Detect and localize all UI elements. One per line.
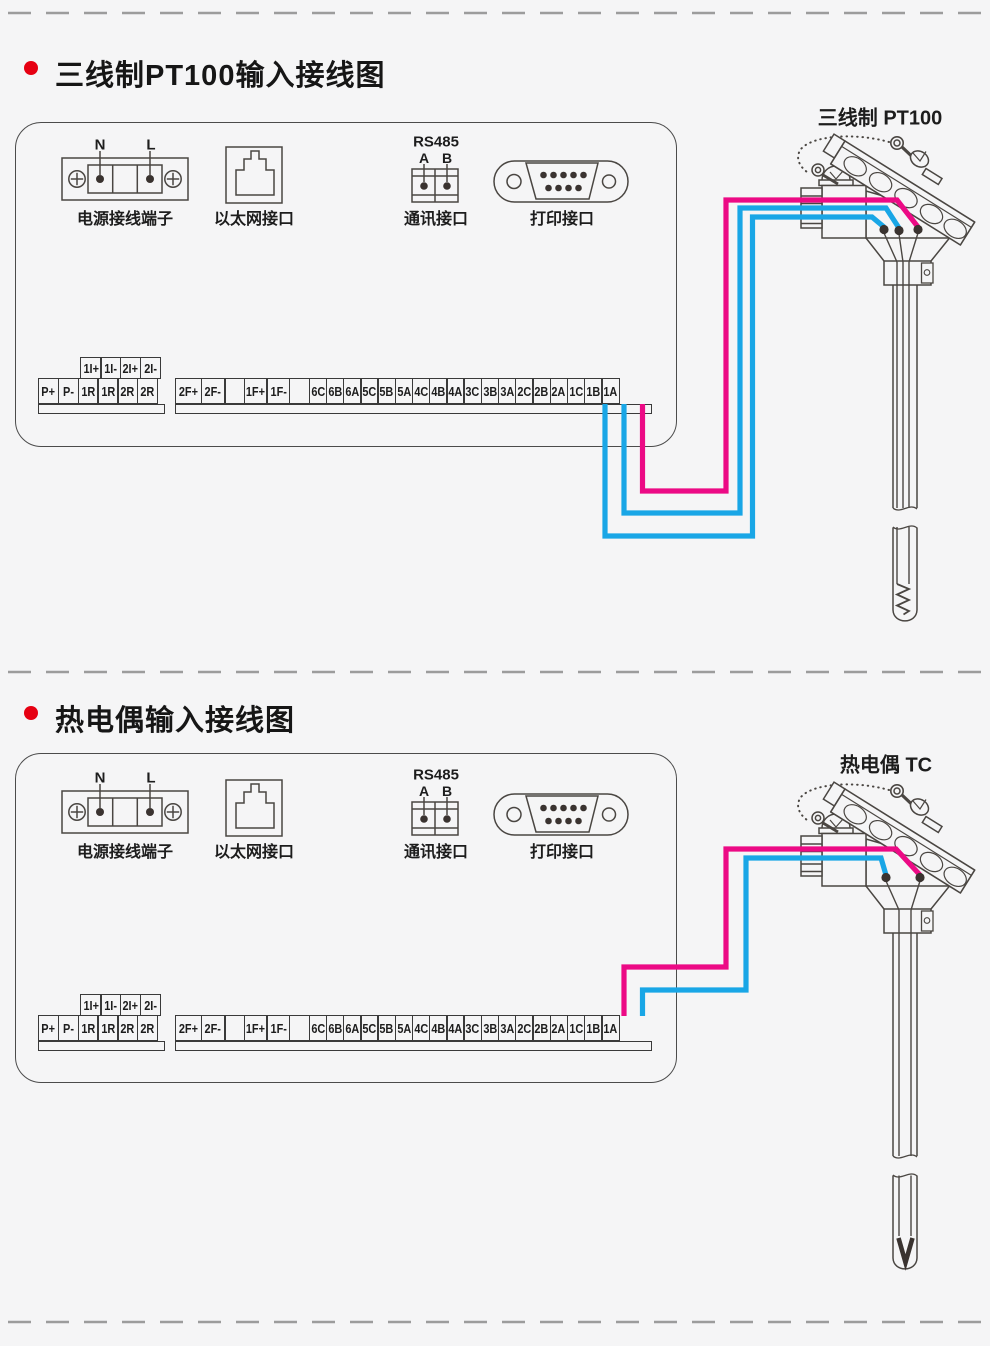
rs485-title: RS485 — [413, 767, 459, 784]
terminal-cell: 1I+ — [80, 357, 101, 379]
terminal-cell: P- — [58, 1015, 79, 1041]
terminal-cell: 1I- — [100, 994, 121, 1016]
tc-sensor-label: 热电偶 TC — [840, 749, 932, 778]
section2-title: 热电偶输入接线图 — [55, 697, 295, 739]
terminal-cell: 2A — [550, 1015, 569, 1041]
terminal-cell — [289, 378, 310, 404]
terminal-cell: 2C — [515, 378, 534, 404]
rs485-a-label: A — [419, 783, 429, 799]
power-l-label: L — [146, 137, 155, 154]
terminal-cell: 6B — [326, 1015, 345, 1041]
terminal-cell: 2B — [532, 1015, 551, 1041]
terminal-cell: 2I+ — [120, 994, 141, 1016]
terminal-cell: 5A — [395, 1015, 414, 1041]
terminal-cell: 1R — [97, 1015, 118, 1041]
terminal-cell: 5C — [360, 378, 379, 404]
terminal-cell: 3C — [463, 1015, 482, 1041]
terminal-cell: 2R — [117, 378, 138, 404]
comm-port-label: 通讯接口 — [404, 205, 468, 229]
terminal-cell: 4B — [429, 1015, 448, 1041]
page: { "colors": { "wire_magenta": "#ec0a85",… — [0, 0, 990, 1346]
terminal-strip-main-base — [175, 404, 652, 414]
terminal-cell — [224, 378, 245, 404]
terminal-cell: 4C — [412, 1015, 431, 1041]
power-l-label: L — [146, 770, 155, 787]
terminal-cell: 1F- — [266, 378, 290, 404]
terminal-cell: 3B — [481, 378, 500, 404]
terminal-cell: 1B — [584, 1015, 603, 1041]
terminal-cell: 2I- — [140, 994, 161, 1016]
terminal-cell: 6C — [309, 378, 328, 404]
terminal-strip-left: P+P-1R1R2R2R — [38, 1015, 158, 1041]
terminal-cell: 4C — [412, 378, 431, 404]
power-n-label: N — [95, 770, 106, 787]
terminal-cell: 2I+ — [120, 357, 141, 379]
terminal-cell: 2B — [532, 378, 551, 404]
terminal-cell: 1R — [97, 378, 118, 404]
terminal-cell: 1A — [601, 1015, 620, 1041]
terminal-cell: 4A — [446, 378, 465, 404]
terminal-cell: 2R — [137, 378, 158, 404]
terminal-cell: 1I+ — [80, 994, 101, 1016]
comm-port-label: 通讯接口 — [404, 838, 468, 862]
section1-title: 三线制PT100输入接线图 — [55, 52, 385, 94]
terminal-cell: 1F+ — [244, 1015, 268, 1041]
power-terminal-label: 电源接线端子 — [77, 205, 173, 229]
terminal-strip-left-base — [38, 1041, 165, 1051]
terminal-cell: 3A — [498, 1015, 517, 1041]
terminal-cell: 6B — [326, 378, 345, 404]
pt100-sensor-label: 三线制 PT100 — [818, 102, 942, 131]
wire-1a-cyan — [643, 858, 887, 1016]
terminal-cell: 2F+ — [175, 378, 202, 404]
terminal-cell: 1A — [601, 378, 620, 404]
terminal-cell: 1C — [567, 378, 586, 404]
terminal-cell: 5A — [395, 378, 414, 404]
terminal-cell: 2F+ — [175, 1015, 202, 1041]
terminal-cell: 1F+ — [244, 378, 268, 404]
terminal-cell: 3C — [463, 378, 482, 404]
section2-bullet — [24, 706, 38, 720]
printer-port-label: 打印接口 — [530, 838, 594, 862]
terminal-cell: 1F- — [266, 1015, 290, 1041]
tc-sensor — [798, 782, 975, 1269]
terminal-cell: 6A — [343, 378, 362, 404]
terminal-cell — [224, 1015, 245, 1041]
terminal-cell: 5B — [377, 1015, 396, 1041]
terminal-strip-left: P+P-1R1R2R2R — [38, 378, 158, 404]
terminal-cell: 3B — [481, 1015, 500, 1041]
terminal-cell: 2I- — [140, 357, 161, 379]
power-terminal-label: 电源接线端子 — [77, 838, 173, 862]
power-n-label: N — [95, 137, 106, 154]
terminal-cell: 3A — [498, 378, 517, 404]
terminal-cell: 2A — [550, 378, 569, 404]
terminal-strip-left-base — [38, 404, 165, 414]
terminal-strip-aux: 1I+1I-2I+2I- — [80, 994, 161, 1016]
terminal-cell: 2F- — [201, 1015, 226, 1041]
terminal-cell: 2R — [137, 1015, 158, 1041]
terminal-strip-main: 2F+2F-1F+1F-6C6B6A5C5B5A4C4B4A3C3B3A2C2B… — [175, 1015, 620, 1041]
terminal-cell: 1C — [567, 1015, 586, 1041]
rs485-a-label: A — [419, 150, 429, 166]
terminal-strip-main: 2F+2F-1F+1F-6C6B6A5C5B5A4C4B4A3C3B3A2C2B… — [175, 378, 620, 404]
ethernet-port-label: 以太网接口 — [214, 838, 294, 862]
terminal-cell: P+ — [38, 378, 59, 404]
terminal-cell: 6A — [343, 1015, 362, 1041]
terminal-strip-aux: 1I+1I-2I+2I- — [80, 357, 161, 379]
terminal-cell: 1R — [78, 378, 99, 404]
ethernet-port-label: 以太网接口 — [214, 205, 294, 229]
wire-1a-magenta — [643, 200, 919, 491]
rs485-b-label: B — [442, 150, 452, 166]
terminal-cell: 2F- — [201, 378, 226, 404]
terminal-cell: 2C — [515, 1015, 534, 1041]
terminal-cell: P- — [58, 378, 79, 404]
terminal-cell: 1B — [584, 378, 603, 404]
terminal-cell: 6C — [309, 1015, 328, 1041]
printer-port-label: 打印接口 — [530, 205, 594, 229]
pt100-sensor — [798, 134, 975, 621]
rs485-b-label: B — [442, 783, 452, 799]
terminal-cell: 5B — [377, 378, 396, 404]
sensor-terminal-dots — [879, 225, 924, 882]
terminal-cell: 5C — [360, 1015, 379, 1041]
section1-bullet — [24, 61, 38, 75]
terminal-cell: 2R — [117, 1015, 138, 1041]
terminal-cell: P+ — [38, 1015, 59, 1041]
terminal-cell: 1R — [78, 1015, 99, 1041]
rs485-title: RS485 — [413, 134, 459, 151]
terminal-cell: 4B — [429, 378, 448, 404]
terminal-strip-main-base — [175, 1041, 652, 1051]
terminal-cell: 1I- — [100, 357, 121, 379]
terminal-cell: 4A — [446, 1015, 465, 1041]
terminal-cell — [289, 1015, 310, 1041]
